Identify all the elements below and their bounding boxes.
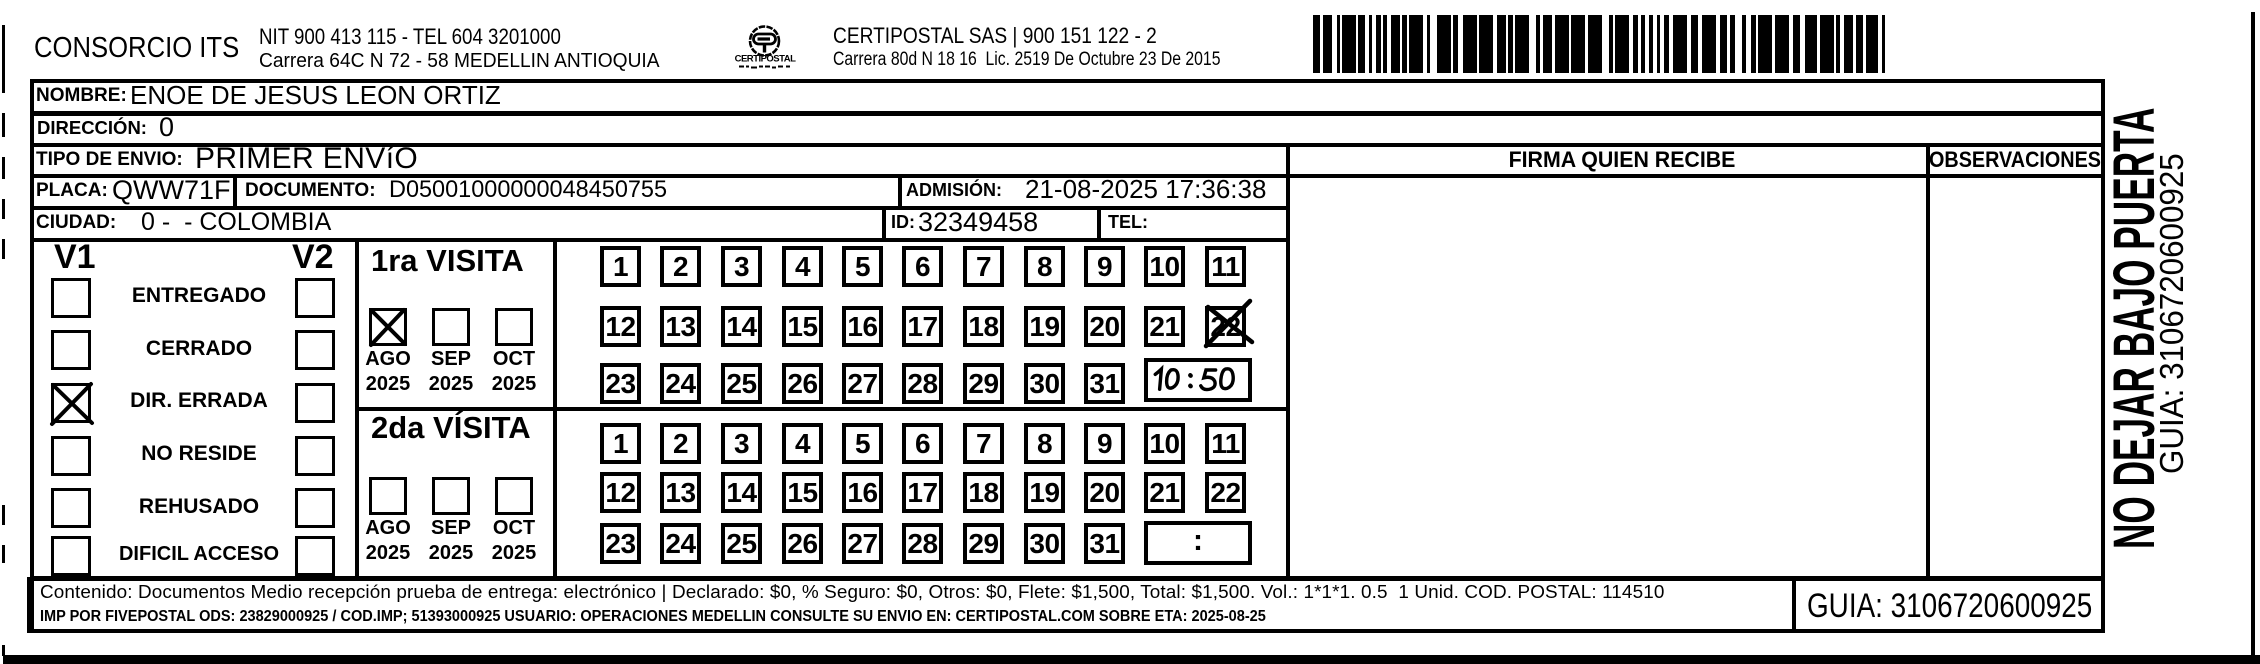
svg-text:CERTIPOSTAL: CERTIPOSTAL bbox=[735, 54, 797, 65]
